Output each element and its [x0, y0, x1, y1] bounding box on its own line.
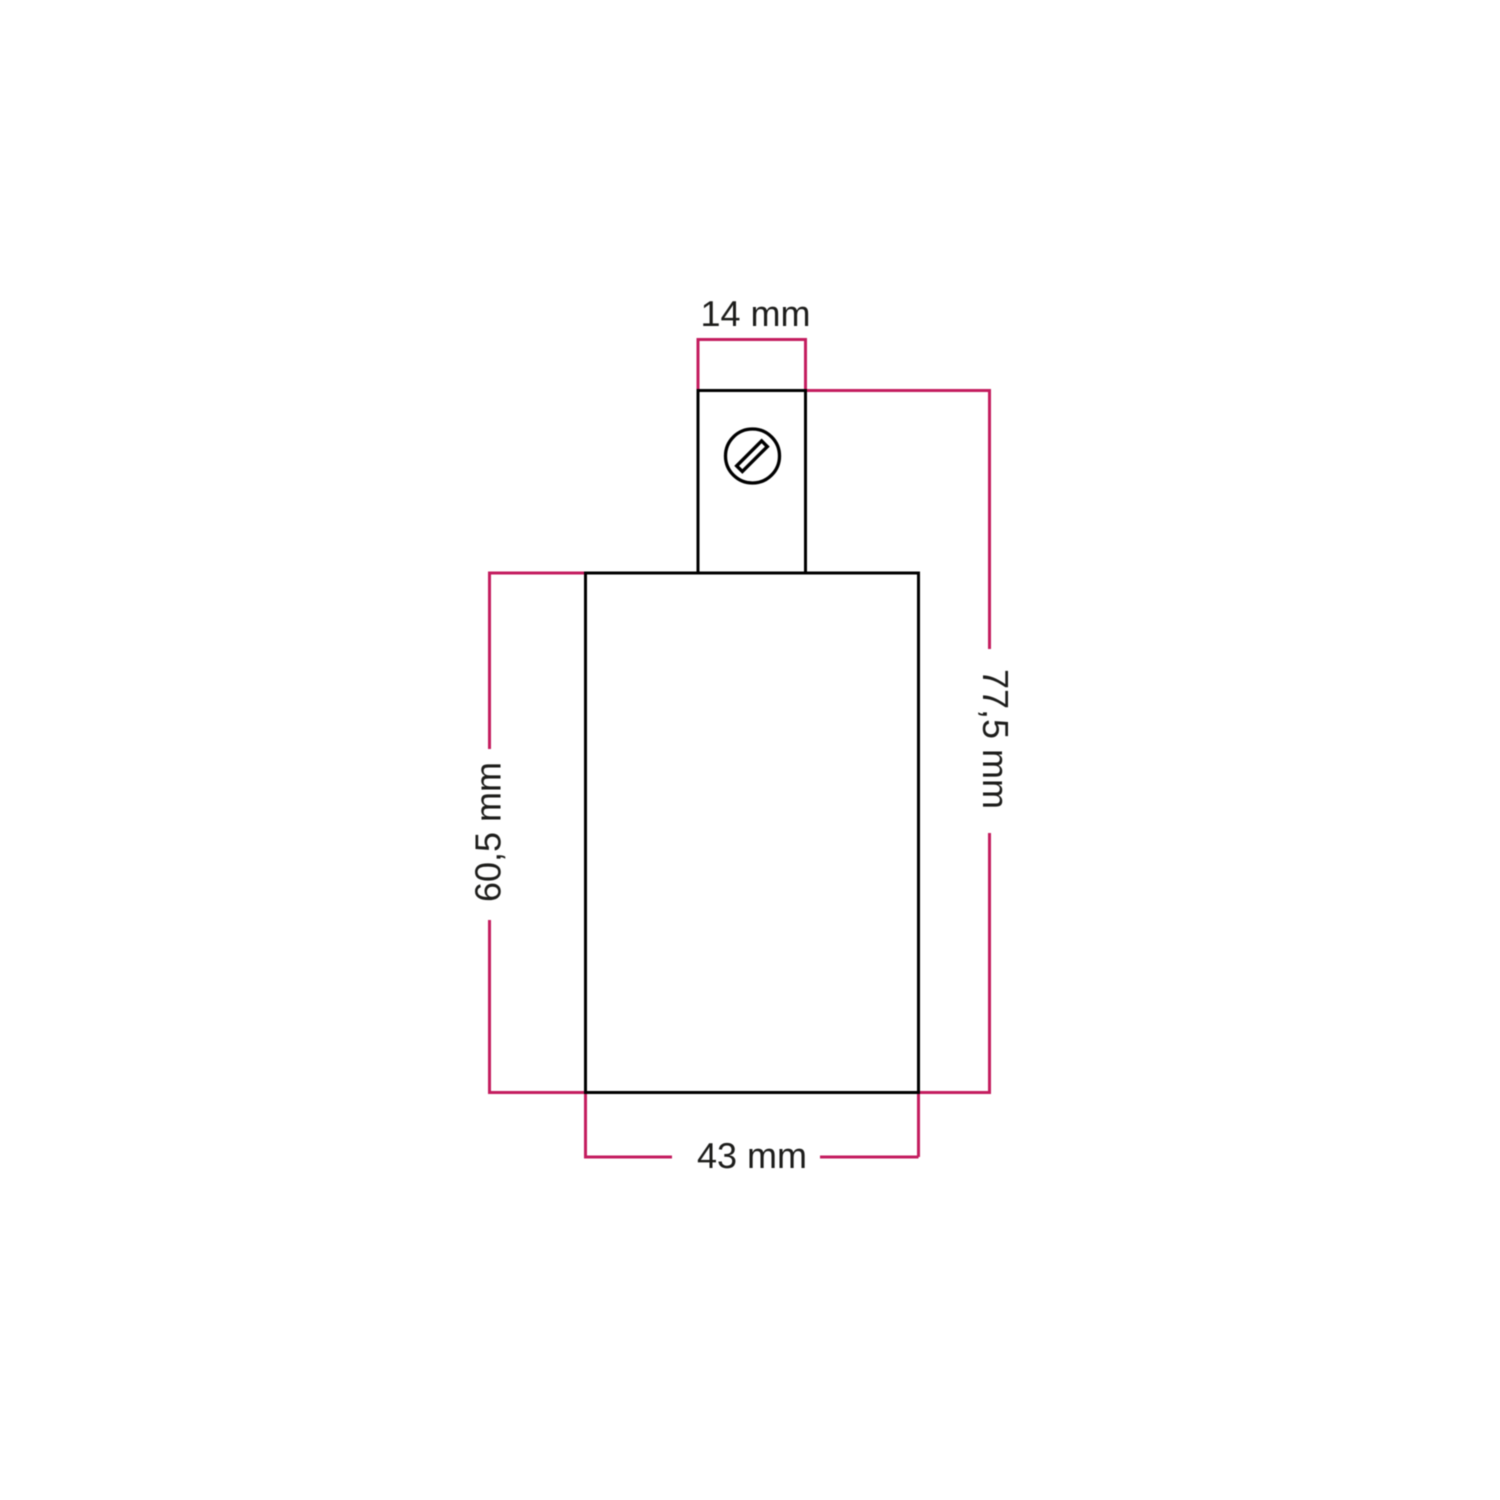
svg-text:43 mm: 43 mm — [697, 1135, 807, 1176]
svg-text:60,5 mm: 60,5 mm — [468, 762, 509, 902]
svg-text:14 mm: 14 mm — [700, 293, 810, 334]
svg-text:77,5 mm: 77,5 mm — [975, 669, 1016, 809]
